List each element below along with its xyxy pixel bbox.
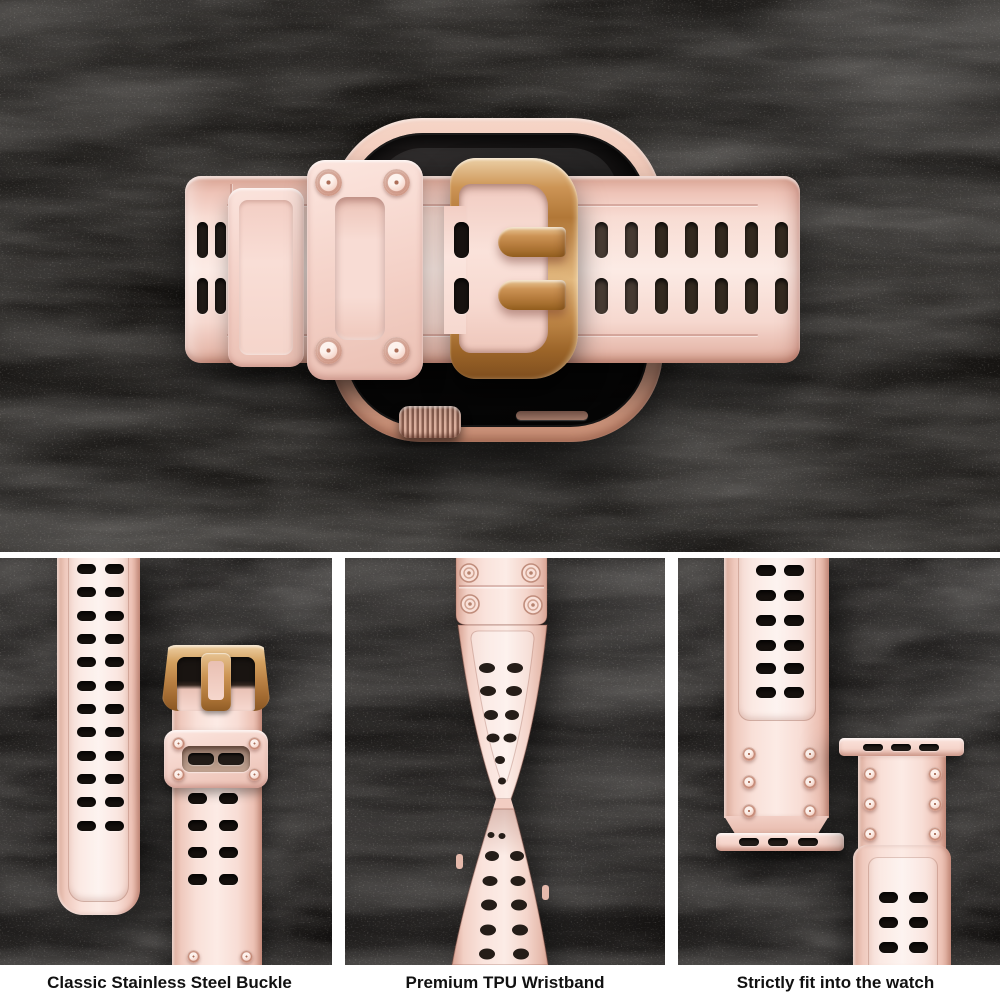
panel-wristband-photo xyxy=(345,558,665,965)
caption-text: Strictly fit into the watch xyxy=(737,973,934,993)
strap-twist-neck xyxy=(493,799,514,809)
buckle-prong xyxy=(498,227,566,257)
product-collage: Classic Stainless Steel Buckle Premium T… xyxy=(0,0,1000,1000)
panel-fit-photo xyxy=(678,558,1000,965)
band-ridge-block xyxy=(228,188,304,367)
twisted-strap-graphic xyxy=(345,558,665,965)
strap-top-block xyxy=(456,558,547,625)
buckle-window xyxy=(459,184,548,353)
texture-sheen xyxy=(0,558,332,965)
band-over-buckle-bar xyxy=(444,206,466,334)
buckle xyxy=(450,158,578,379)
screw-rivet xyxy=(383,337,410,364)
caption-fit: Strictly fit into the watch xyxy=(671,965,1000,1000)
screw-rivet xyxy=(383,169,410,196)
detail-panels xyxy=(0,552,1000,965)
caption-buckle: Classic Stainless Steel Buckle xyxy=(0,965,339,1000)
caption-text: Classic Stainless Steel Buckle xyxy=(47,973,292,993)
side-button-slot xyxy=(516,411,588,420)
panel-buckle-photo xyxy=(0,558,332,965)
caption-wristband: Premium TPU Wristband xyxy=(339,965,671,1000)
screw-rivet xyxy=(315,169,342,196)
hero-photo xyxy=(0,0,1000,552)
texture-sheen xyxy=(678,558,1000,965)
buckle-prong xyxy=(498,280,566,310)
caption-text: Premium TPU Wristband xyxy=(406,973,605,993)
keeper-window xyxy=(335,197,385,340)
strap-lower-taper xyxy=(452,809,549,965)
caption-strip: Classic Stainless Steel Buckle Premium T… xyxy=(0,965,1000,1000)
band-ridge-face xyxy=(239,200,293,355)
digital-crown xyxy=(399,406,461,438)
keeper-loop xyxy=(307,160,423,380)
strap-upper-taper xyxy=(458,625,547,799)
screw-rivet xyxy=(315,337,342,364)
